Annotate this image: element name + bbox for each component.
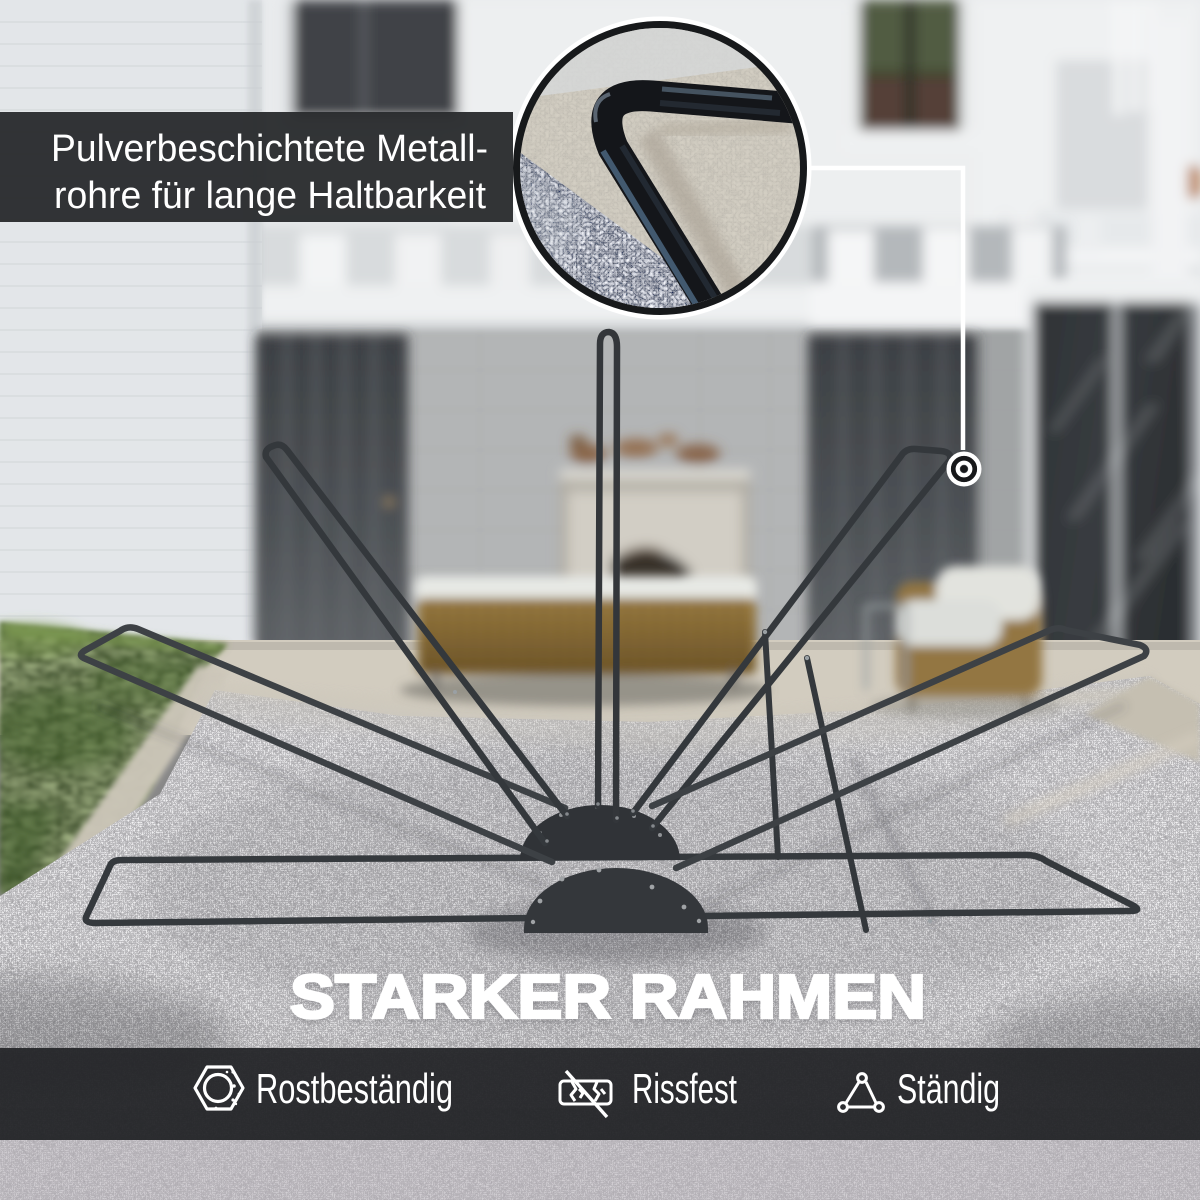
svg-text:Ständig: Ständig xyxy=(897,1065,1000,1112)
svg-text:Rissfest: Rissfest xyxy=(632,1065,737,1112)
svg-text:rohre für lange Haltbarkeit: rohre für lange Haltbarkeit xyxy=(54,175,486,217)
svg-text:Pulverbeschichtete Metall-: Pulverbeschichtete Metall- xyxy=(51,128,488,170)
svg-text:STARKER RAHMEN: STARKER RAHMEN xyxy=(290,963,926,1032)
svg-text:Rostbeständig: Rostbeständig xyxy=(256,1065,453,1112)
